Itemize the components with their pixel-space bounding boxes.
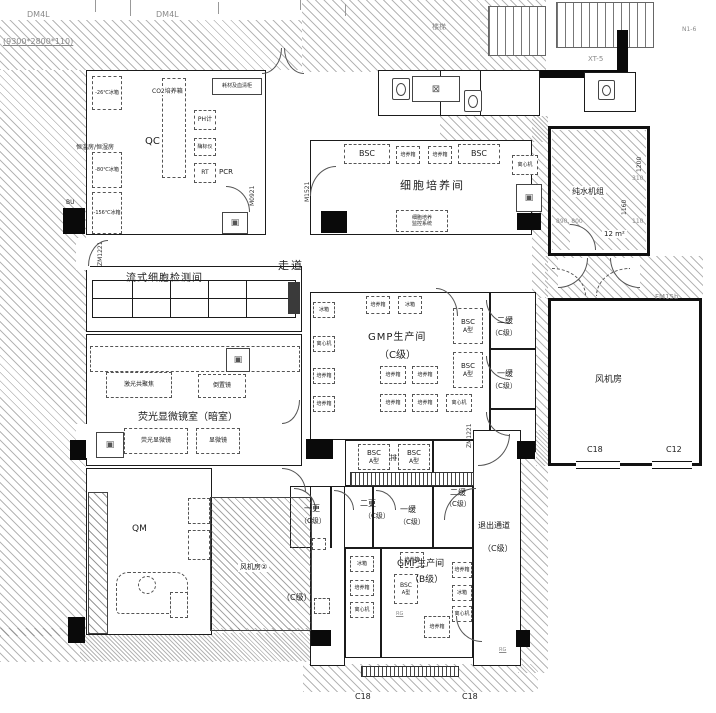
survey-tick [345,4,346,16]
room-label-buffer2-mid: 二缓 [450,487,466,498]
room-label-flow: 流式细胞检测间 [126,269,203,284]
survey-tick [218,2,219,14]
room-label-qm: QM [132,524,147,534]
column-corridor-mid [306,439,333,459]
floor-drain-glyph: ⊠ [432,84,440,95]
room-label-gmp-b: GMP生产间 [397,556,444,569]
airlock-grille [350,472,474,486]
dim-110: 110 [632,218,643,225]
toilet-icon [392,78,410,100]
label-exhaust: 排 [390,453,397,463]
door-code-m0921: M0921 [249,186,256,206]
equipment-label: 培养箱 [454,567,469,573]
equipment-microscope: 显微镜 [196,428,240,454]
equipment-label: 培养箱 [385,372,400,378]
label-rg-b: RG [499,647,506,653]
room-label-exit: 退出通道 [478,520,510,531]
equipment-label: 培养箱 [316,373,331,379]
column-fan-wall [517,441,535,459]
label-co2-incubator: CO2培养箱 [150,86,185,95]
equipment-fridge: 冰箱 [313,302,335,318]
qm-chair [138,576,156,594]
column-cell-culture-right [517,213,541,230]
equipment-label: 倒置镜 [213,382,231,390]
equipment-bsc-a: BSC A型 [453,352,483,388]
room-label-pure-water: 纯水机组 [570,186,606,197]
dim-890-800: 890, 800 [556,218,583,225]
equipment-label: BSC [359,149,375,159]
column-cell-culture-left [321,211,347,233]
equipment-label: RT [201,169,208,177]
room-label-gmp-b-class: （B级） [410,572,443,585]
pass-box-glyph: ▣ [231,218,240,228]
equipment-bsc-a: BSC A型 [358,444,390,470]
door-arc [262,48,282,74]
flow-bench-divider [132,280,133,318]
room-label-buffer2-right: 二缓 [497,315,513,326]
equipment-label: 激光共聚焦 [124,381,154,389]
survey-tick [130,0,131,16]
equipment-label: 培养箱 [400,152,415,158]
room-label-exit-class: （C级） [483,543,513,554]
door-arc [282,468,306,492]
equipment-label: 离心机 [354,607,369,613]
wall-buffer-divider-2 [490,408,536,410]
flow-bench-divider [170,280,171,318]
equipment-label: 冰箱 [405,302,415,308]
label-fan-c12: C12 [666,445,682,454]
pass-box-icon: ▣ [516,184,542,212]
equipment-label: 荧光显微镜 [141,437,171,445]
equipment-label: BSC [461,318,475,327]
equipment-incubator: 培养箱 [412,366,438,384]
label-fm15b: FM15b [655,293,678,301]
flow-bench-divider [208,280,209,318]
equipment-inverted-scope: 倒置镜 [198,374,246,398]
qm-cabinet [188,498,210,524]
equipment-fridge: 冰箱 [398,296,422,314]
label-xt5: XT-5 [588,55,603,63]
room-label-cell-culture: 细胞培养间 [400,177,465,193]
equipment-bsc: BSC [344,144,390,164]
equipment-label: BSC [471,149,487,159]
room-label-change1: 一更 [304,503,320,514]
label-corridor: 走道 [278,257,304,273]
wall-gmpb-anteroom [380,548,382,658]
equipment-label: 酶标仪 [197,144,212,150]
equipment-centrifuge: 离心机 [446,394,472,412]
wall-hatch-qm-bottom [80,633,315,661]
corridor-fixture [312,538,326,550]
left-wall-door-wedge [70,440,86,460]
equipment-label: 离心机 [451,400,466,406]
room-label-buffer1-mid-class: （C级） [399,517,425,527]
equipment-bsc: BSC [458,144,500,164]
label-temp-rooms: 恒温房/恒湿房 [76,142,114,151]
fluor-bench-band [90,346,300,372]
equipment-incubator: 培养箱 [366,296,390,314]
door-code-m1521: M1521 [304,182,311,202]
qm-shelving [88,492,108,634]
equipment-bsc-a: BSC A型 [398,444,430,470]
pass-box-icon: ▣ [96,432,124,458]
label-rg-a: RG [396,611,403,617]
label-c18-bottom-b: C18 [462,692,478,701]
room-label-buffer1-mid: 一缓 [400,504,416,515]
room-label-fluorescence: 荧光显微镜室（暗室） [138,408,238,423]
label-pcr: PCR [219,168,233,176]
equipment-label: 离心机 [517,162,532,168]
flow-bench-divider [246,280,247,318]
stair-block-left [488,6,546,56]
label-c18-bottom-a: C18 [355,692,371,701]
fan-window [652,461,692,469]
equipment-label: 冰箱 [319,307,329,313]
door-code-zm1221-left: ZM1221 [97,241,104,266]
label-n1: N1-6 [682,26,696,33]
wall-hatch-left-strip [0,70,86,636]
equipment-incubator: 培养箱 [396,146,420,164]
duct-bar-vertical [617,30,628,78]
equipment-monitor: 细胞培养 监控系统 [396,210,448,232]
equipment-confocal: 激光共聚焦 [106,372,172,398]
pass-box-glyph: ▣ [525,193,534,203]
column-corridor-bottom [311,630,331,646]
pass-box-icon: ▣ [222,212,248,234]
survey-tick [95,0,96,12]
equipment-label: 冰箱 [457,590,467,596]
equipment-label: 冰箱 [357,561,367,567]
toilet-icon [464,90,482,112]
door-arc [284,48,304,74]
fan-window [576,461,620,469]
equipment-incubator: 培养箱 [412,394,438,412]
flow-bench [92,280,296,318]
equipment-incubator: 培养箱 [313,368,335,384]
toilet-icon [598,80,615,100]
pass-box-glyph: ▣ [106,440,115,450]
equipment-incubator: 培养箱 [380,394,406,412]
room-label-change2: 二更 [360,498,376,509]
floor-plan: ⊠ ▣ 激光共聚焦 倒置镜 荧光显微镜 显微镜 ▣ -26℃冰箱 恒温房/恒湿房… [0,0,716,713]
wall-change-divider-1 [330,486,332,548]
equipment-label: 培养箱 [417,372,432,378]
equipment-incubator: 培养箱 [350,580,374,596]
equipment-incubator: 培养箱 [452,562,472,578]
room-label-change1-class: （C级） [300,516,326,526]
room-label-gmp-c: GMP生产间 [368,328,426,343]
equipment-plate-reader: 酶标仪 [194,138,216,156]
label-dm4l-a: DM4L [27,10,50,19]
label-dm4l-b: DM4L [156,10,179,19]
equipment-fluor-scope: 荧光显微镜 [124,428,188,454]
equipment-label: 培养箱 [417,400,432,406]
column-bu-device [63,208,85,234]
label-stairs: 楼梯 [432,22,446,32]
room-label-change2-class: （C级） [364,511,390,521]
equipment-incubator: 培养箱 [313,396,335,412]
equipment-label: PH计 [198,116,212,124]
equipment-label: BSC [367,449,381,458]
equipment-ph-meter: PH计 [194,110,216,130]
equipment-label: 培养箱 [432,152,447,158]
survey-tick [300,0,301,10]
room-label-buffer1-right-class: （C级） [491,381,517,391]
equipment-label: BSC [461,362,475,371]
equipment-label: 监控系统 [412,221,432,227]
equipment-freezer-156: -156℃冰箱 [92,192,122,234]
equipment-label: A型 [402,590,410,596]
equipment-label: -26℃冰箱 [95,90,119,96]
equipment-label: -80℃冰箱 [95,167,119,173]
room-label-buffer2-mid-class: （C级） [445,499,471,509]
equipment-label: 培养箱 [370,302,385,308]
flow-bench-midline [92,298,296,299]
room-label-gmp-c-class: （C级） [379,346,416,361]
pass-box-glyph: ▣ [234,355,243,365]
wall-change-divider-3 [432,440,434,548]
label-pure-water-area: 12 m² [602,230,627,238]
equipment-label: 培养箱 [385,400,400,406]
equipment-incubator: 培养箱 [380,366,406,384]
stair-block-right [556,2,654,48]
wall-buffer-divider-1 [490,348,536,350]
column-qm-left [68,617,85,643]
door-code-zm1221-right: ZM1221 [466,423,473,448]
equipment-centrifuge: 离心机 [512,155,538,175]
equipment-label: 培养箱 [354,585,369,591]
equipment-fridge: 冰箱 [452,585,472,601]
floor-drain-icon: ⊠ [412,76,460,102]
label-corridor-c-class: （C级） [282,592,312,603]
equipment-label: 耗材及血清柜 [222,83,252,89]
equipment-label: A型 [369,458,379,466]
room-label-fan-2: 风机房② [238,562,269,572]
equipment-label: BSC [407,449,421,458]
corridor-fixture [314,598,330,614]
flow-device [288,282,300,314]
dim-1160: 1160 [621,200,628,215]
room-fan [548,298,702,466]
equipment-label: 显微镜 [209,437,227,445]
equipment-label: A型 [463,371,473,379]
column-exit-bottom [516,630,530,647]
equipment-incubator: 培养箱 [424,616,450,638]
equipment-freezer-26: -26℃冰箱 [92,76,122,110]
equipment-label: -156℃冰箱 [94,210,121,216]
qm-cabinet [188,530,210,560]
equipment-fridge: 冰箱 [350,556,374,572]
label-bu: BU [66,199,75,206]
dim-1200: 1200 [636,157,643,172]
room-label-buffer2-right-class: （C级） [491,328,517,338]
equipment-rt: RT [194,163,216,183]
room-label-buffer1-right: 一缓 [497,368,513,379]
equipment-label: 培养箱 [316,401,331,407]
equipment-cabinet: 耗材及血清柜 [212,78,262,95]
room-label-qc: QC [145,136,160,147]
equipment-label: A型 [409,458,419,466]
equipment-label: 离心机 [316,341,331,347]
wall-hatch-top-mid [302,0,480,72]
equipment-label: A型 [463,327,473,335]
equipment-incubator: 培养箱 [428,146,452,164]
bottom-window [361,666,459,677]
room-label-fan: 风机房 [595,372,622,385]
dim-310: 310 [632,175,643,182]
equipment-centrifuge: 离心机 [313,336,335,352]
equipment-freezer-80: -80℃冰箱 [92,152,122,188]
label-slab-dim: (9300*2800*110) [3,37,73,46]
label-fan-c18: C18 [587,445,603,454]
equipment-centrifuge: 离心机 [350,602,374,618]
equipment-label: 培养箱 [429,624,444,630]
qm-side-table [170,592,188,618]
pass-box-icon: ▣ [226,348,250,372]
